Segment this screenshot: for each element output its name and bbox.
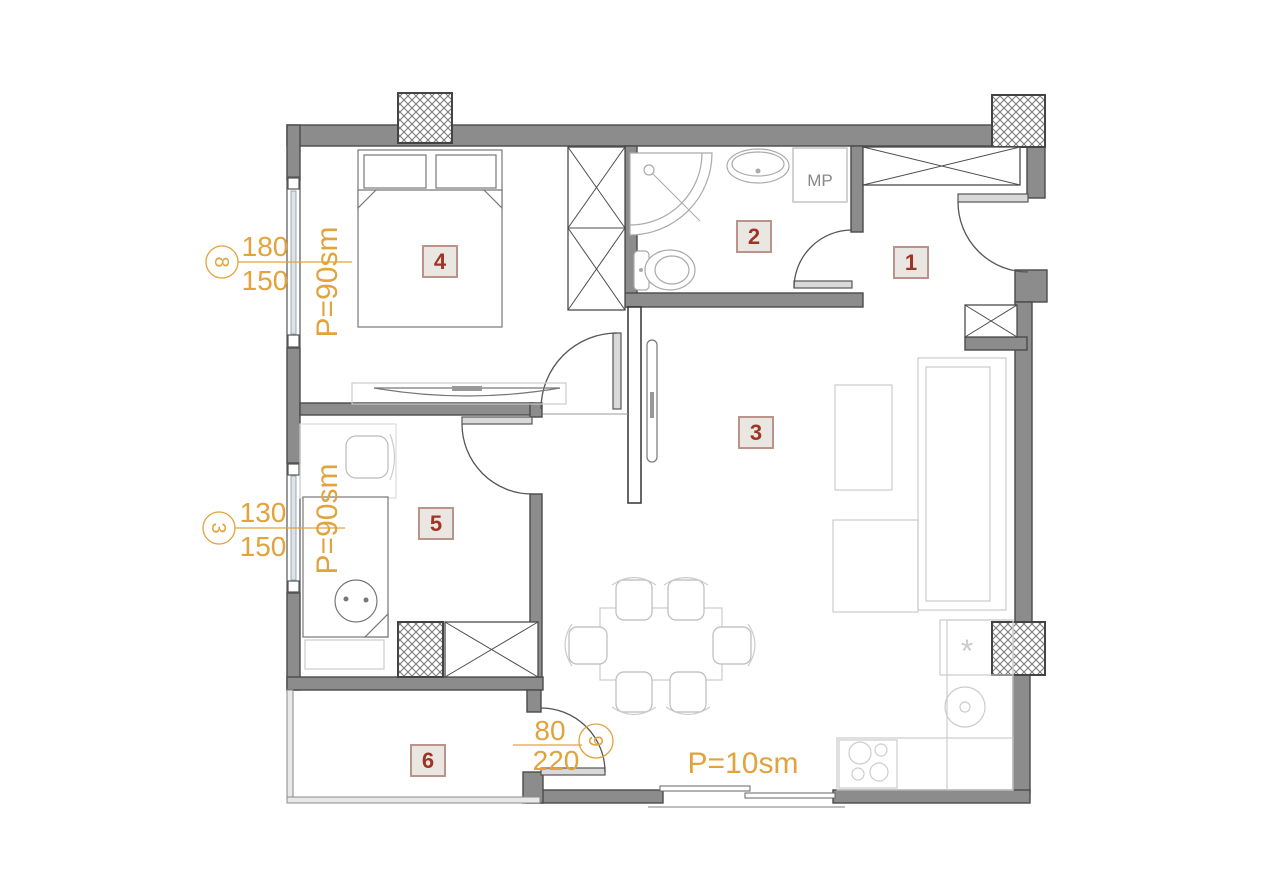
door-mark-bubble: 9 [584, 735, 606, 746]
column-top-center [398, 93, 452, 143]
room-badge-4: 4 [423, 246, 457, 277]
stove [839, 740, 897, 788]
window-mark-1-top: 180 [242, 231, 289, 262]
door-mark-bottom: 220 [533, 745, 580, 776]
shower [630, 153, 712, 235]
room-badge-6: 6 [411, 745, 445, 776]
side-table [833, 520, 918, 612]
dining-chair [612, 578, 656, 621]
tv-dresser [352, 383, 566, 404]
room-badge-2: 2 [737, 221, 771, 252]
toilet [634, 250, 695, 290]
washing-machine-label: MP [807, 171, 833, 190]
room-badge-2-number: 2 [748, 224, 760, 249]
wardrobe-hallway [863, 147, 1020, 185]
wardrobe-bedroom-second [445, 622, 538, 677]
bedroom-main-door [541, 333, 621, 409]
sofa [918, 358, 1006, 610]
dining-chair [612, 672, 656, 715]
double-bed [358, 150, 502, 327]
window-mark-2-bubble: 3 [207, 522, 229, 533]
area-label-bedroom-main: P=90sm [311, 227, 344, 338]
desk-chair [346, 434, 395, 480]
entry-door [958, 194, 1028, 272]
bathroom-fixtures: MP [630, 148, 847, 290]
bedroom-second-door [462, 417, 532, 494]
wall-tv [647, 340, 657, 462]
room-badge-3: 3 [739, 417, 773, 448]
floor-plan-drawing: MP [0, 0, 1280, 881]
washing-machine: MP [793, 148, 847, 202]
balcony-sliding-door [648, 786, 845, 807]
dining-chair [565, 624, 607, 666]
shaft-box [965, 305, 1017, 337]
dining-set [565, 578, 755, 715]
room-badge-3-number: 3 [750, 420, 762, 445]
bedroom-main-furniture [352, 150, 566, 404]
window-mark-2-bottom: 150 [240, 531, 287, 562]
dining-chair [666, 672, 710, 715]
coffee-table [835, 385, 892, 490]
dining-table [600, 608, 722, 680]
column-top-right [992, 95, 1045, 147]
room-badge-6-number: 6 [422, 748, 434, 773]
tv-partition-wall [628, 307, 641, 503]
column-bottom-right [992, 622, 1045, 675]
window-mark-1-bottom: 150 [242, 265, 289, 296]
wardrobe-bedroom-main [568, 147, 625, 310]
room-badge-4-number: 4 [434, 249, 447, 274]
column-interior [398, 622, 443, 677]
room-badge-5-number: 5 [430, 511, 442, 536]
room-badge-5: 5 [419, 508, 453, 539]
window-mark-1-bubble: 8 [210, 256, 232, 267]
washbasin [727, 149, 789, 183]
bathroom-door [794, 230, 852, 288]
floor-plan-canvas: MP [0, 0, 1280, 881]
kitchen: * [837, 620, 1013, 790]
door-mark: 80 220 9 [513, 715, 613, 776]
window-mark-2-top: 130 [240, 497, 287, 528]
room-badge-1: 1 [894, 247, 928, 278]
freezer-symbol: * [961, 633, 973, 669]
dining-chair [664, 578, 708, 621]
area-label-bedroom-second: P=90sm [311, 464, 344, 575]
kitchen-sink [945, 687, 985, 727]
bed-bench [305, 640, 384, 669]
room-badge-1-number: 1 [905, 250, 917, 275]
dining-chair [713, 624, 755, 666]
area-label-balcony: P=10sm [688, 747, 799, 780]
door-mark-top: 80 [534, 715, 565, 746]
